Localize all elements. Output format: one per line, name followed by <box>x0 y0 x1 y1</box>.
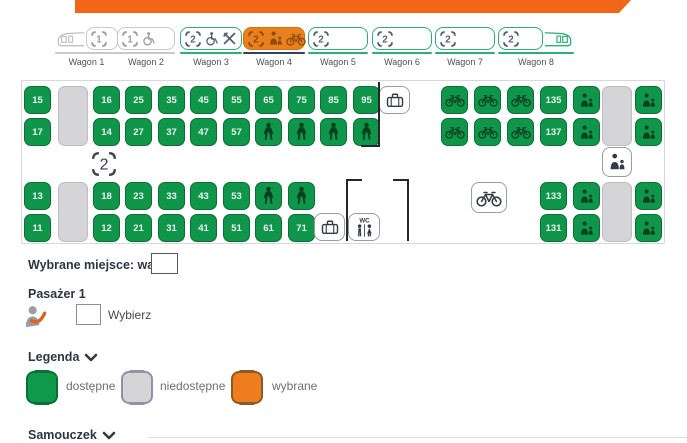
car-wall <box>378 82 380 146</box>
wagon-label: Wagon 8 <box>518 57 554 67</box>
bike-icon <box>286 32 306 46</box>
seat-parent-child[interactable] <box>573 118 600 146</box>
seat-person[interactable] <box>288 118 315 146</box>
car-wall <box>346 179 348 241</box>
seat-class-icon: 2 <box>247 30 265 48</box>
seat-11[interactable]: 11 <box>24 214 51 242</box>
seat-53[interactable]: 53 <box>223 182 250 210</box>
car-seat-map: 1516253545556575859513517142737475713713… <box>21 80 665 244</box>
blocked-area <box>58 182 88 242</box>
seat-47[interactable]: 47 <box>190 118 217 146</box>
svg-text:2: 2 <box>445 34 451 45</box>
wagon-label: Wagon 2 <box>128 57 164 67</box>
seat-parent-child[interactable] <box>635 86 662 114</box>
wagon-button-3[interactable]: 2Wagon 3 <box>180 27 242 67</box>
seat-65[interactable]: 65 <box>255 86 282 114</box>
wagon-underline <box>372 52 432 54</box>
seat-person[interactable] <box>320 118 347 146</box>
seat-class-icon: 2 <box>502 30 520 48</box>
wagon-button-8[interactable]: 2Wagon 8 <box>498 27 574 67</box>
seat-class-icon: 2 <box>439 30 457 48</box>
seat-person[interactable] <box>255 118 282 146</box>
brand-banner <box>75 0 631 13</box>
seat-45[interactable]: 45 <box>190 86 217 114</box>
seat-41[interactable]: 41 <box>190 214 217 242</box>
seat-43[interactable]: 43 <box>190 182 217 210</box>
svg-text:2: 2 <box>508 34 514 45</box>
wagon-box: 1 <box>117 27 175 50</box>
luggage-marker-icon <box>314 213 345 241</box>
seat-131[interactable]: 131 <box>540 214 567 242</box>
wheelchair-icon <box>141 31 157 47</box>
passenger-title: Pasażer 1 <box>28 287 86 301</box>
car-wall <box>361 145 380 147</box>
legend-seat-unavailable <box>121 371 153 404</box>
wagon-box: 2 <box>308 27 368 50</box>
blocked-area <box>58 86 88 146</box>
seat-33[interactable]: 33 <box>158 182 185 210</box>
legend-label-unavailable: niedostępne <box>160 379 225 393</box>
seat-13[interactable]: 13 <box>24 182 51 210</box>
seat-bike[interactable] <box>474 86 501 114</box>
seat-parent-child[interactable] <box>573 182 600 210</box>
seat-bike[interactable] <box>507 86 534 114</box>
seat-bike[interactable] <box>474 118 501 146</box>
wagon-button-6[interactable]: 2Wagon 6 <box>372 27 432 67</box>
svg-text:2: 2 <box>318 34 324 45</box>
seat-25[interactable]: 25 <box>125 86 152 114</box>
wagon-underline <box>180 52 242 54</box>
train-head-icon <box>55 28 85 50</box>
seat-55[interactable]: 55 <box>223 86 250 114</box>
wagon-number-input[interactable] <box>151 253 178 274</box>
car-wall <box>407 179 409 241</box>
restaurant-icon <box>222 31 237 46</box>
seat-12[interactable]: 12 <box>93 214 120 242</box>
bike-marker-icon <box>471 182 507 213</box>
seat-75[interactable]: 75 <box>288 86 315 114</box>
class2-marker-icon: 2 <box>87 149 120 179</box>
wagon-underline <box>498 52 574 54</box>
wagon-button-1[interactable]: 1Wagon 1 <box>55 27 118 67</box>
svg-text:2: 2 <box>253 34 259 45</box>
blocked-area <box>602 86 632 146</box>
wagon-box: 1 <box>86 27 118 50</box>
seat-class-icon: 1 <box>121 30 139 48</box>
wagon-label: Wagon 6 <box>384 57 420 67</box>
seat-bike[interactable] <box>507 118 534 146</box>
passenger-choose-label: Wybierz <box>108 308 151 322</box>
wagon-box: 2 <box>243 27 305 50</box>
seat-bike[interactable] <box>441 118 468 146</box>
svg-text:WC: WC <box>359 217 370 224</box>
seat-57[interactable]: 57 <box>223 118 250 146</box>
seat-18[interactable]: 18 <box>93 182 120 210</box>
wheelchair-icon <box>204 31 220 47</box>
seat-class-icon: 1 <box>90 30 108 48</box>
wc-marker-icon: WC <box>348 213 380 241</box>
seat-23[interactable]: 23 <box>125 182 152 210</box>
wagon-box: 2 <box>435 27 495 50</box>
legend-seat-selected <box>231 371 263 404</box>
car-wall <box>393 179 409 181</box>
wagon-underline <box>117 52 175 54</box>
seat-95[interactable]: 95 <box>353 86 380 114</box>
seat-133[interactable]: 133 <box>540 182 567 210</box>
seat-61[interactable]: 61 <box>255 214 282 242</box>
seat-85[interactable]: 85 <box>320 86 347 114</box>
parent-child-icon <box>267 30 284 47</box>
blocked-area <box>602 182 632 242</box>
svg-text:2: 2 <box>190 34 196 45</box>
wagon-box: 2 <box>180 27 242 50</box>
section-divider <box>148 437 687 438</box>
seat-parent-child[interactable] <box>573 86 600 114</box>
chevron-down-icon <box>102 431 116 440</box>
legend-header[interactable]: Legenda <box>28 350 98 364</box>
seat-35[interactable]: 35 <box>158 86 185 114</box>
seat-17[interactable]: 17 <box>24 118 51 146</box>
wagon-selector: 1Wagon 11Wagon 22Wagon 32Wagon 42Wagon 5… <box>0 27 687 73</box>
seat-27[interactable]: 27 <box>125 118 152 146</box>
seat-person[interactable] <box>288 182 315 210</box>
wagon-underline <box>435 52 495 54</box>
luggage-marker-icon <box>379 86 410 114</box>
seat-21[interactable]: 21 <box>125 214 152 242</box>
svg-text:2: 2 <box>99 157 108 174</box>
seat-31[interactable]: 31 <box>158 214 185 242</box>
seat-16[interactable]: 16 <box>93 86 120 114</box>
wagon-box: 2 <box>498 27 543 50</box>
seat-class-icon: 2 <box>376 30 394 48</box>
chevron-down-icon <box>84 353 98 362</box>
seat-bike[interactable] <box>441 86 468 114</box>
train-tail-icon <box>544 28 574 50</box>
seat-person[interactable] <box>255 182 282 210</box>
seat-parent-child[interactable] <box>635 182 662 210</box>
car-wall <box>346 179 362 181</box>
wagon-button-4[interactable]: 2Wagon 4 <box>243 27 305 67</box>
seat-135[interactable]: 135 <box>540 86 567 114</box>
seat-parent-child[interactable] <box>635 214 662 242</box>
tutorial-title: Samouczek <box>28 428 97 442</box>
legend-label-available: dostępne <box>66 379 115 393</box>
seat-parent-child[interactable] <box>573 214 600 242</box>
wagon-label: Wagon 5 <box>320 57 356 67</box>
legend-title: Legenda <box>28 350 79 364</box>
seat-14[interactable]: 14 <box>93 118 120 146</box>
wagon-button-5[interactable]: 2Wagon 5 <box>308 27 368 67</box>
svg-text:2: 2 <box>382 34 388 45</box>
seat-15[interactable]: 15 <box>24 86 51 114</box>
passenger-seat-checkbox[interactable] <box>76 304 101 325</box>
seat-71[interactable]: 71 <box>288 214 315 242</box>
wagon-underline <box>243 52 305 54</box>
wagon-underline <box>55 52 118 54</box>
seat-137[interactable]: 137 <box>540 118 567 146</box>
svg-text:1: 1 <box>96 34 102 45</box>
seat-class-icon: 2 <box>312 30 330 48</box>
wagon-button-7[interactable]: 2Wagon 7 <box>435 27 495 67</box>
parent-child-marker-icon <box>602 147 632 177</box>
seat-37[interactable]: 37 <box>158 118 185 146</box>
legend-seat-available <box>26 371 58 404</box>
seat-person[interactable] <box>353 118 380 146</box>
tutorial-header[interactable]: Samouczek <box>28 428 116 442</box>
seat-51[interactable]: 51 <box>223 214 250 242</box>
passenger-icon <box>23 303 50 335</box>
wagon-label: Wagon 1 <box>69 57 105 67</box>
wagon-button-2[interactable]: 1Wagon 2 <box>117 27 175 67</box>
wagon-label: Wagon 4 <box>256 57 292 67</box>
legend-label-selected: wybrane <box>272 379 317 393</box>
svg-text:1: 1 <box>127 34 133 45</box>
wagon-label: Wagon 3 <box>193 57 229 67</box>
wagon-box: 2 <box>372 27 432 50</box>
wagon-underline <box>308 52 368 54</box>
seat-class-icon: 2 <box>184 30 202 48</box>
wagon-label: Wagon 7 <box>447 57 483 67</box>
seat-parent-child[interactable] <box>635 118 662 146</box>
